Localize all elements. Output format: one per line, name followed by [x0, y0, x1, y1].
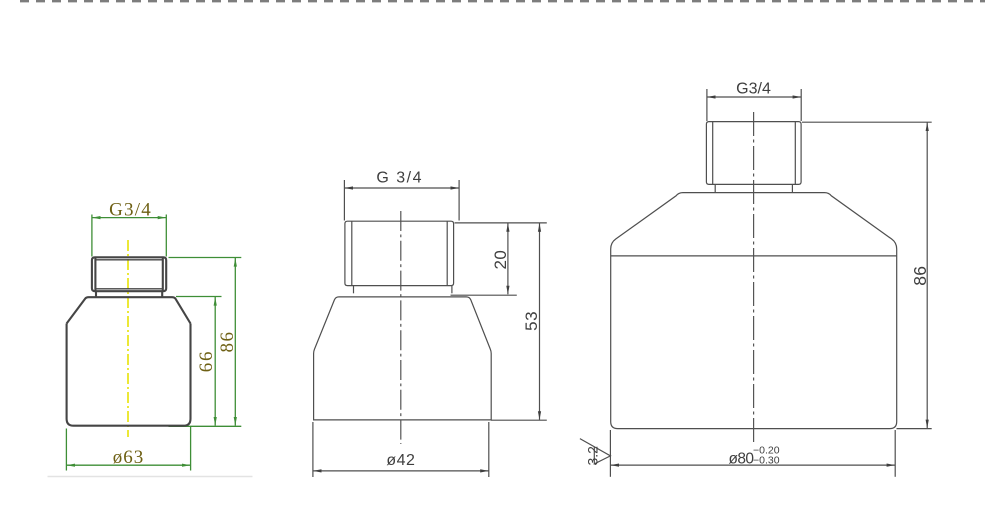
svg-text:ø63: ø63	[113, 447, 145, 468]
svg-text:G3/4: G3/4	[109, 199, 152, 220]
svg-text:20: 20	[491, 250, 510, 270]
svg-text:66: 66	[196, 350, 217, 373]
svg-text:86: 86	[217, 331, 238, 353]
svg-text:3.2: 3.2	[584, 446, 600, 466]
svg-text:ø80: ø80	[729, 451, 755, 468]
svg-text:53: 53	[522, 311, 541, 331]
svg-text:G3/4: G3/4	[736, 81, 771, 98]
svg-text:ø42: ø42	[386, 452, 415, 469]
svg-text:G 3/4: G 3/4	[376, 170, 423, 187]
svg-text:86: 86	[910, 266, 930, 286]
svg-text:−0.30: −0.30	[753, 454, 780, 466]
